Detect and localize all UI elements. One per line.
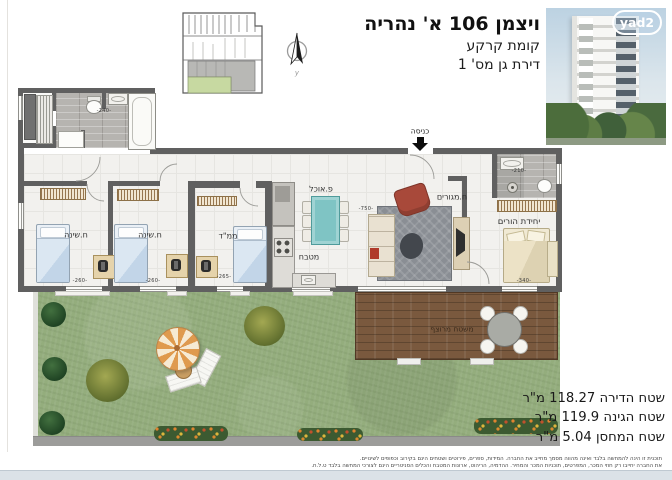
wall-segment [102, 93, 106, 109]
wall-segment [256, 181, 272, 188]
kitchen-sink [301, 275, 316, 285]
bed [233, 226, 267, 283]
utility-cabinet [24, 94, 36, 140]
floorplan-page: ויצמן 106 א' נהריה קומת קרקע דירת גן מס'… [0, 0, 672, 480]
window-sill [167, 291, 187, 296]
deck-table [487, 312, 522, 347]
blanket [115, 238, 147, 282]
building-photo: yad2 [546, 8, 666, 145]
wall-segment [188, 181, 240, 188]
shower-head [507, 182, 518, 193]
bottom-strip [0, 470, 672, 480]
photo-ground [546, 138, 666, 145]
dimension-label: -750- [359, 206, 374, 212]
header-block: ויצמן 106 א' נהריה קומת קרקע דירת גן מס'… [364, 12, 540, 75]
dimension-label: -265- [217, 274, 232, 280]
dimension-label: -240- [97, 108, 112, 114]
dining-chair [339, 229, 349, 242]
tree [244, 306, 285, 346]
office-chair [171, 259, 181, 271]
window-sill [55, 291, 110, 296]
wall-segment [113, 181, 160, 186]
umbrella-pole [174, 345, 180, 351]
sofa [368, 214, 395, 277]
room-label-parents: יחידת הורים [498, 217, 541, 227]
room-label-living: ח.מגורים [437, 193, 467, 202]
dimension-label: -340- [517, 278, 532, 284]
dimension-label: -260- [73, 278, 88, 284]
wall-segment [433, 148, 562, 154]
left-edge-line [7, 0, 8, 452]
window-sill [230, 291, 250, 296]
window [556, 164, 562, 184]
closet [197, 196, 237, 206]
bedside-bench [547, 241, 558, 277]
deck-step [397, 358, 421, 365]
unit-label: דירת גן מס' 1 [364, 56, 540, 75]
sliding-door [358, 286, 446, 292]
bush [41, 302, 66, 327]
room-label-bedroom2: ח.שינה [138, 231, 162, 240]
closet [117, 189, 159, 201]
wall-segment [188, 181, 195, 286]
garden-curb [33, 436, 560, 446]
office-chair [201, 260, 211, 272]
refrigerator [275, 186, 290, 202]
north-arrow-icon: y [282, 30, 312, 78]
window [18, 203, 24, 229]
room-label-kitchen: מטבח [299, 253, 319, 262]
area-line-storage: שטח המחסן 5.04 מ"ר [522, 428, 665, 447]
toilet [537, 179, 552, 193]
closet [497, 200, 557, 212]
wall-segment [150, 148, 408, 154]
deck-step [470, 358, 494, 365]
page-title: ויצמן 106 א' נהריה [364, 12, 540, 37]
bathroom-sink [108, 93, 128, 105]
sofa-cushion-red [370, 248, 379, 259]
yad2-logo: yad2 [612, 10, 662, 35]
room-label-mamad: ממ"ד [219, 232, 238, 241]
disclaimer: תוכנית זו הינה להמחשה בלבד ואינה מהווה מ… [242, 456, 662, 470]
disclaimer-line: את החברה יחייבו רק חוזי המכר, המפרטים, ת… [242, 463, 662, 470]
disclaimer-line: תוכנית זו הינה להמחשה בלבד ואינה מהווה מ… [242, 456, 662, 463]
closet [40, 188, 86, 200]
area-line-garden: שטח הגינה 119.9 מ"ר [522, 408, 665, 427]
garden-left-edge [33, 292, 38, 438]
window [502, 286, 537, 292]
window-sill [293, 291, 333, 296]
parents-bed [503, 228, 550, 283]
entrance-arrow-icon [412, 143, 428, 151]
key-plan [175, 8, 267, 102]
stove [274, 238, 293, 257]
svg-text:y: y [294, 69, 300, 77]
room-label-bedroom1: ח.שינה [64, 231, 88, 240]
wall-segment [492, 154, 497, 198]
room-label-dining: פ.אוכל [309, 185, 333, 194]
bathtub [128, 93, 156, 150]
dining-chair [339, 215, 349, 228]
dining-chair [339, 201, 349, 214]
blanket [234, 240, 266, 282]
blanket [504, 241, 549, 282]
window [18, 96, 23, 120]
bush [39, 411, 65, 435]
dimension-label: -210- [512, 168, 527, 174]
blanket [37, 238, 69, 282]
room-label-deck: משטח מרוצף [430, 325, 473, 334]
bush [42, 357, 67, 381]
wall-segment [24, 181, 87, 186]
tree [86, 359, 129, 402]
office-chair [98, 260, 108, 272]
area-summary: שטח הדירה 118.27 מ"ר שטח הגינה 119.9 מ"ר… [522, 389, 665, 447]
shelving-unit [36, 95, 53, 144]
floor-label: קומת קרקע [364, 37, 540, 56]
flower-bed [154, 426, 228, 441]
area-line-apartment: שטח הדירה 118.27 מ"ר [522, 389, 665, 408]
yad2-logo-text: yad2 [620, 15, 654, 30]
shower-tray [58, 131, 84, 148]
dimension-label: -260- [146, 278, 161, 284]
pillow [237, 229, 263, 240]
pillow [40, 227, 66, 238]
dining-table [311, 196, 340, 245]
flower-bed [297, 428, 363, 441]
entrance-label: כניסה [411, 127, 429, 136]
